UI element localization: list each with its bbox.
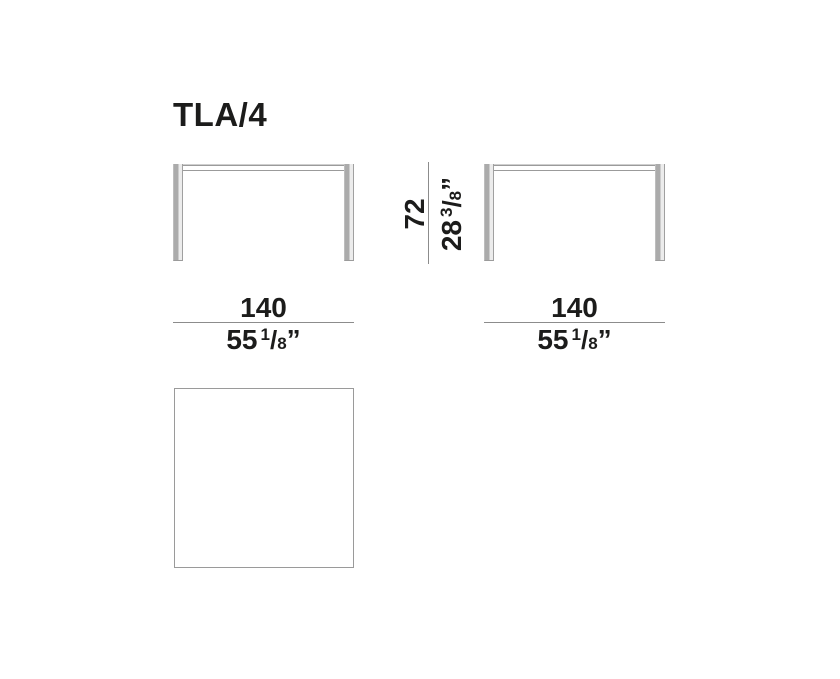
fraction-numerator: 1 xyxy=(571,325,580,344)
imperial-whole: 55 xyxy=(537,324,568,355)
inch-mark: ” xyxy=(598,324,612,355)
fraction-numerator: 3 xyxy=(437,208,456,217)
table-leg xyxy=(173,164,183,261)
tabletop-slab xyxy=(173,164,354,171)
top-view-square xyxy=(174,388,354,568)
front-view-right xyxy=(484,164,665,261)
fraction-denominator: 8 xyxy=(446,191,465,200)
inch-mark: ” xyxy=(287,324,301,355)
width-left-metric-label: 140 xyxy=(173,294,354,322)
model-title: TLA/4 xyxy=(173,96,267,134)
technical-drawing-canvas: TLA/4 72 283/8” 140 551/8” 140 551/8” xyxy=(0,0,840,679)
width-left-dimension-line xyxy=(173,322,354,323)
table-leg xyxy=(655,164,665,261)
width-right-dimension-line xyxy=(484,322,665,323)
fraction-numerator: 1 xyxy=(260,325,269,344)
width-right-imperial-label: 551/8” xyxy=(484,326,665,358)
imperial-whole: 28 xyxy=(436,220,467,251)
fraction-slash: / xyxy=(437,200,467,207)
fraction-denominator: 8 xyxy=(588,334,597,353)
table-leg xyxy=(484,164,494,261)
imperial-whole: 55 xyxy=(226,324,257,355)
height-metric-label: 72 xyxy=(398,162,432,266)
tabletop-slab xyxy=(484,164,665,171)
front-view-left xyxy=(173,164,354,261)
width-left-imperial-label: 551/8” xyxy=(173,326,354,358)
fraction-denominator: 8 xyxy=(277,334,286,353)
table-leg xyxy=(344,164,354,261)
width-right-metric-label: 140 xyxy=(484,294,665,322)
inch-mark: ” xyxy=(436,177,467,191)
height-imperial-label: 283/8” xyxy=(432,162,472,266)
